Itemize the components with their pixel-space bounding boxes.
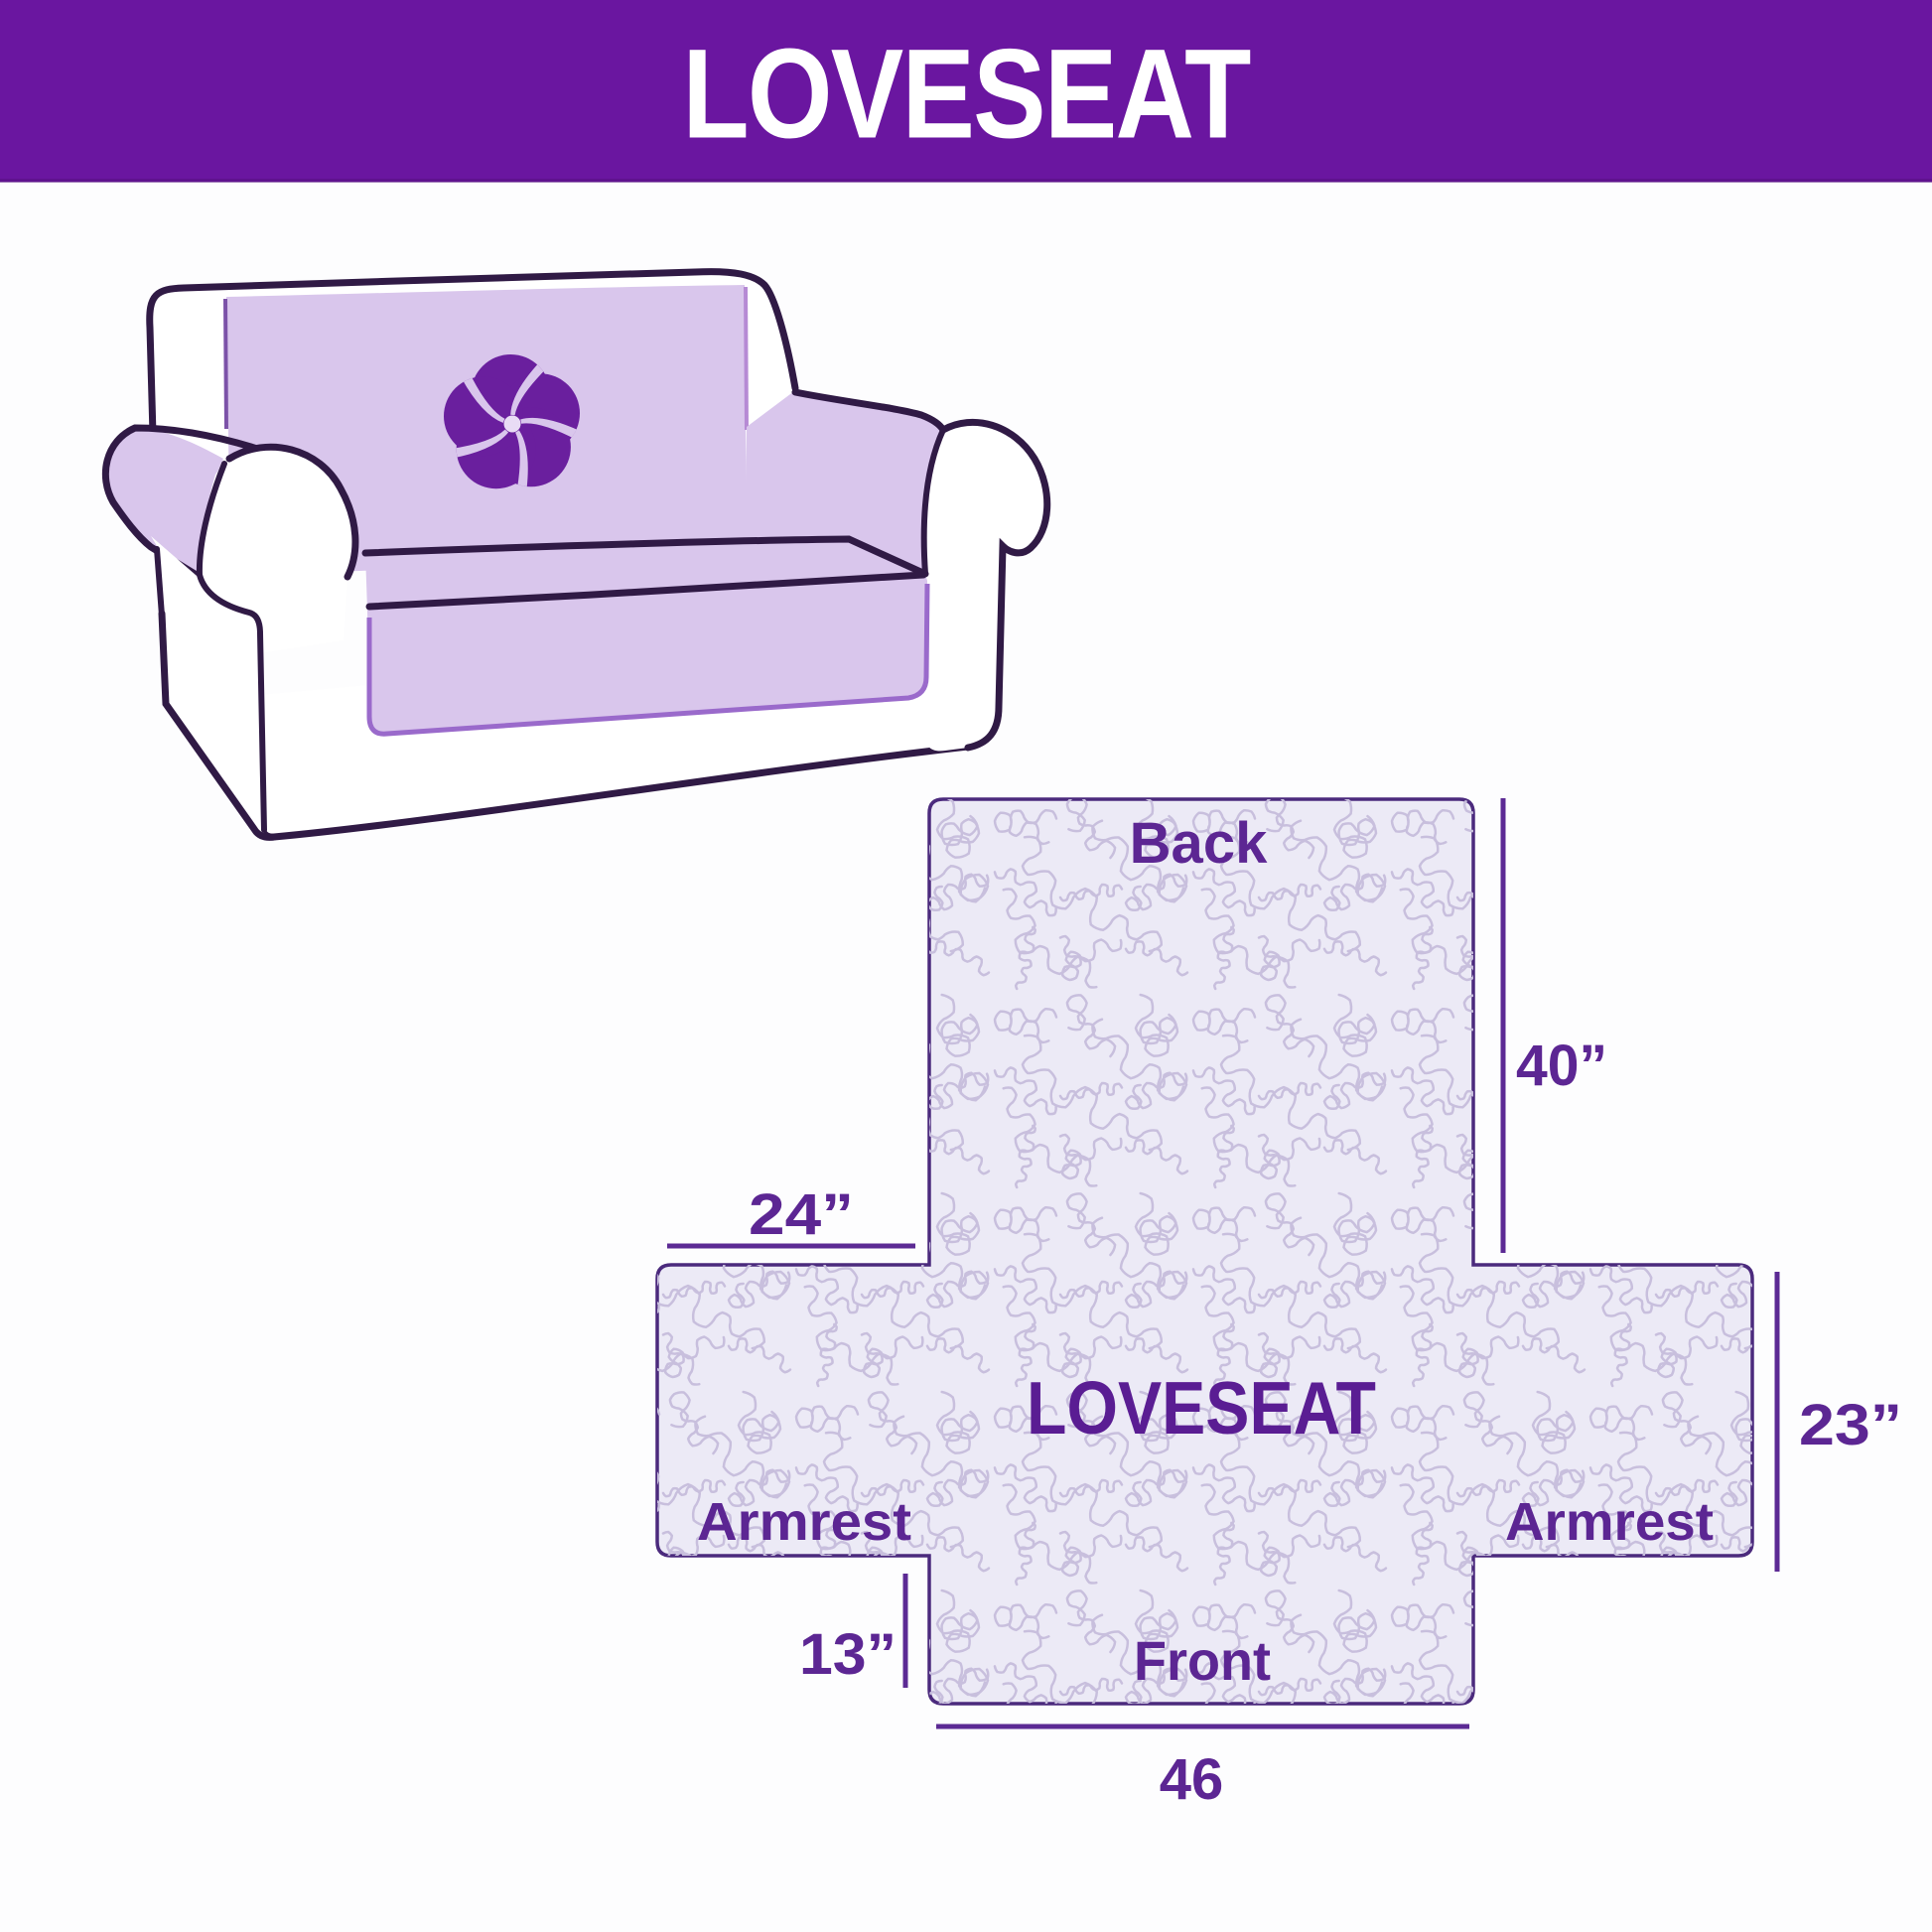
svg-text:13”: 13” [799,1622,897,1687]
svg-text:LOVESEAT: LOVESEAT [682,24,1250,166]
svg-text:LOVESEAT: LOVESEAT [1027,1366,1376,1449]
svg-text:24”: 24” [749,1182,854,1247]
svg-text:Back: Back [1130,811,1268,876]
svg-text:Front: Front [1134,1629,1271,1692]
svg-text:Armrest: Armrest [697,1492,911,1552]
svg-text:46: 46 [1160,1747,1224,1812]
svg-text:23”: 23” [1799,1393,1902,1457]
svg-text:40”: 40” [1516,1034,1607,1098]
svg-text:Armrest: Armrest [1505,1492,1714,1552]
